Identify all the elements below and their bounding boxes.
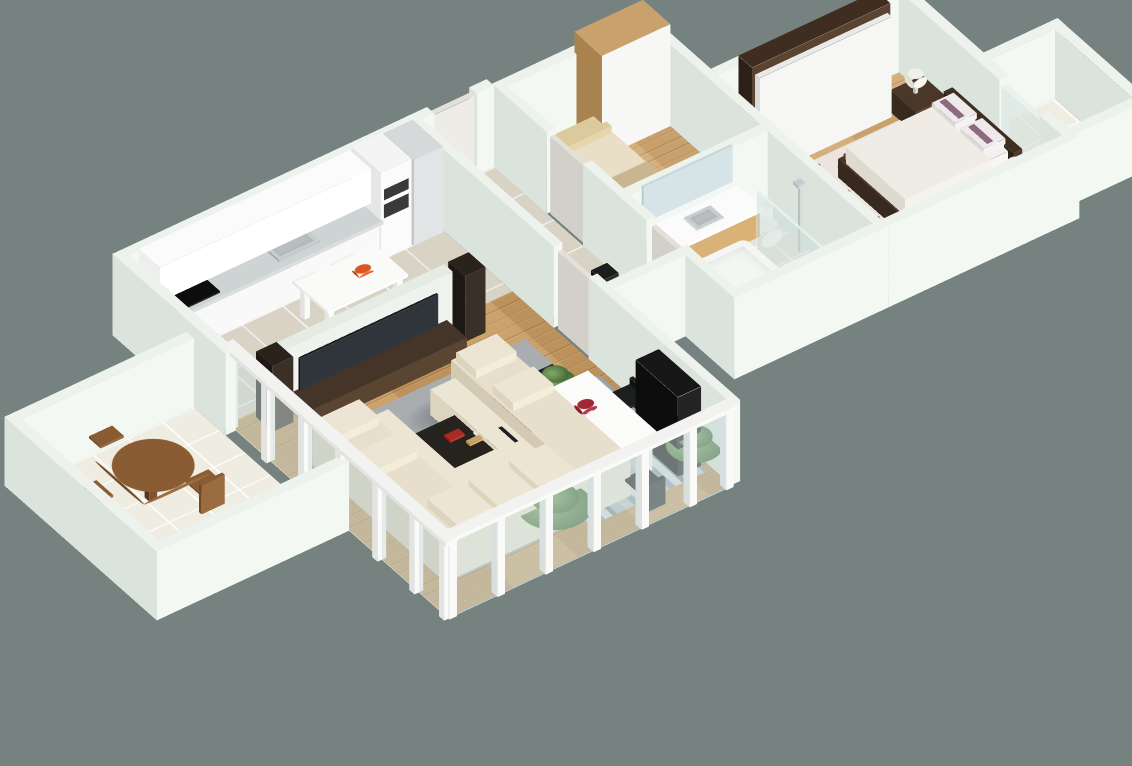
fridge-face bbox=[414, 147, 443, 246]
wall-kitchen-west-face bbox=[226, 349, 236, 435]
wall-balcony-north-face bbox=[4, 417, 11, 492]
wall-entry-north-b-face bbox=[477, 86, 494, 176]
window-post-face bbox=[690, 423, 697, 508]
window-post-face bbox=[642, 445, 649, 530]
wall-balcony-south-face bbox=[149, 545, 156, 620]
window-post-face bbox=[450, 535, 457, 620]
wall-corridor-south-face bbox=[598, 286, 605, 374]
window-post-face bbox=[726, 406, 733, 491]
wall-corridor-west-b-face bbox=[589, 277, 599, 367]
window-post-face bbox=[498, 512, 505, 597]
wall-bathroom-south-face bbox=[727, 292, 734, 380]
window-post-face bbox=[594, 468, 601, 553]
window-post-face bbox=[546, 490, 553, 575]
floor-plan-render bbox=[0, 0, 1132, 766]
speaker-tower-face bbox=[465, 267, 485, 342]
